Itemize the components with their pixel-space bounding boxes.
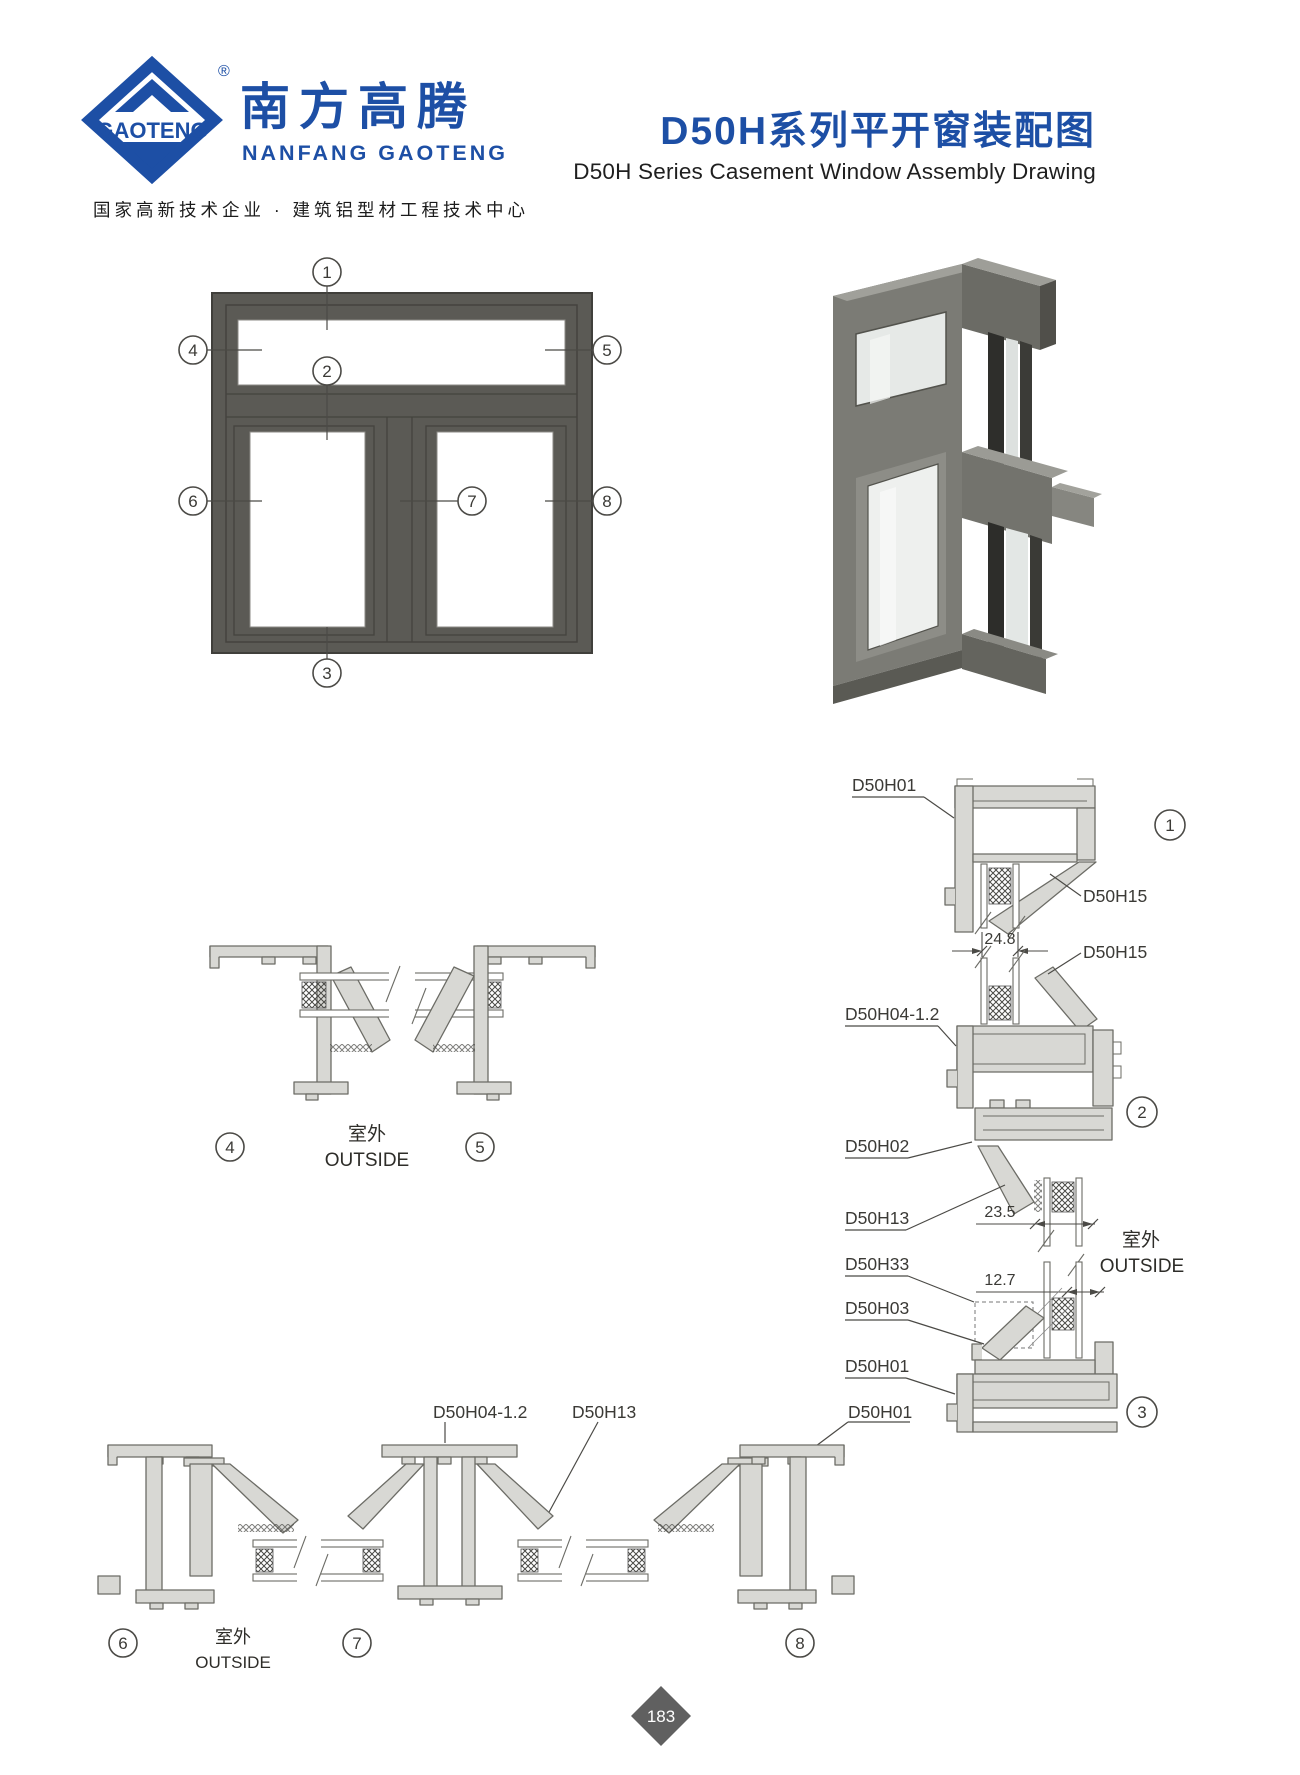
dim-glass-unit: 24.8 [984, 931, 1015, 948]
label-d50h15-top: D50H15 [1083, 886, 1147, 906]
callout-6-number: 6 [188, 492, 197, 511]
profile-3d-render [760, 240, 1160, 710]
base-tooth [754, 1603, 767, 1609]
callout-7-number: 7 [352, 1634, 361, 1653]
callout-8-number: 8 [795, 1634, 804, 1653]
left-sash-pane [250, 432, 365, 627]
leader-bead [548, 1422, 598, 1514]
cap-tooth [402, 1457, 415, 1464]
leader-frame [816, 1422, 848, 1446]
spacer [1052, 1182, 1074, 1212]
sill-flange [973, 1422, 1117, 1432]
glazing-bar-upper-1 [988, 332, 1004, 468]
glazing-bead-15b [1035, 967, 1097, 1031]
bead-hook [972, 1344, 982, 1360]
jamb-foot [457, 1082, 511, 1094]
glass-unit-a [253, 1535, 383, 1586]
sash-top-rail [975, 1108, 1112, 1140]
jamb-web [317, 946, 331, 1094]
transom-body [957, 1026, 1093, 1072]
mullion-web [424, 1457, 437, 1589]
gasket-strip [238, 1524, 294, 1532]
logo-brand-latin: GAOTENG [96, 118, 207, 143]
meeting-stile-right [477, 1464, 553, 1529]
frame-flange [1077, 808, 1095, 860]
frame-shelf [973, 854, 1077, 862]
frame-top-hooks [957, 779, 1093, 786]
break-gap [389, 967, 415, 1023]
sill-body [957, 1374, 1117, 1408]
transom-flange [1093, 1030, 1113, 1106]
aluminum-sample-render [833, 258, 1102, 704]
outside-right-cjk: 室外 [1122, 1229, 1160, 1251]
lower-glass [868, 464, 938, 650]
outside-label-cjk: 室外 [348, 1123, 386, 1145]
callout-2: 2 [313, 357, 341, 385]
gaoteng-logo-icon: GAOTENG ® [90, 63, 230, 176]
page-title-cjk: D50H系列平开窗装配图 [556, 108, 1096, 157]
callout-6: 6 [179, 487, 207, 515]
callout-4-detail: 4 [216, 1133, 244, 1161]
right-sash-stile [654, 1458, 768, 1576]
dim-12-7: 12.7 [976, 1272, 1105, 1297]
callout-4: 4 [179, 336, 207, 364]
glazing-bar-upper-2 [1020, 341, 1032, 472]
dim-glazing-pocket: 23.5 [984, 1204, 1015, 1221]
callout-8-number: 8 [602, 492, 611, 511]
frame-top-bar [955, 786, 1095, 808]
callout-detail-7: 7 [343, 1629, 371, 1657]
transom-web [957, 1026, 973, 1108]
callout-detail-2-number: 2 [1137, 1103, 1146, 1122]
registered-mark: ® [218, 63, 230, 80]
label-d50h04-bottom: D50H04-1.2 [433, 1402, 527, 1422]
glass-edge-upper [1006, 338, 1018, 469]
mullion-foot [398, 1586, 502, 1599]
callout-7-number: 7 [467, 492, 476, 511]
glazing-bead-03 [982, 1306, 1044, 1360]
glass-unit-transom [975, 946, 1025, 1024]
brand-cjk: 南方高腾 [240, 79, 476, 135]
leader-d50h33 [908, 1276, 974, 1302]
glass-pane [1013, 864, 1019, 928]
jamb-web [474, 946, 488, 1094]
leader-d50h15b [1048, 953, 1081, 974]
logo-block: GAOTENG ® 南方高腾 NANFANG GAOTENG 国家高新技术企业 … [80, 48, 560, 228]
callout-1: 1 [313, 258, 341, 286]
cap-tooth [474, 1457, 487, 1464]
meeting-stile-left [348, 1464, 424, 1529]
jamb-base [136, 1590, 214, 1603]
page-number-badge: 183 [625, 1680, 697, 1752]
label-d50h01-sill: D50H01 [845, 1356, 909, 1376]
lower-glass-streak [880, 487, 896, 646]
glass-pane [1013, 958, 1019, 1024]
jamb-web [146, 1457, 162, 1595]
callout-detail-1-number: 1 [1165, 816, 1174, 835]
page: GAOTENG ® 南方高腾 NANFANG GAOTENG 国家高新技术企业 … [0, 0, 1300, 1775]
page-title-en: D50H Series Casement Window Assembly Dra… [556, 159, 1096, 185]
callout-4-number: 4 [225, 1138, 234, 1157]
upper-glass-streak [870, 334, 890, 404]
callout-8: 8 [593, 487, 621, 515]
callout-2-number: 2 [322, 362, 331, 381]
right-jamb-profile [415, 946, 595, 1100]
spacer [628, 1549, 645, 1572]
fixed-top-pane [238, 320, 565, 385]
cap-tooth [529, 957, 542, 964]
interlock [1016, 1100, 1030, 1108]
foot-tooth [466, 1599, 479, 1605]
callout-detail-3-number: 3 [1137, 1403, 1146, 1422]
callout-detail-6: 6 [109, 1629, 137, 1657]
label-d50h13-bottom: D50H13 [572, 1402, 636, 1422]
leader-d50h03 [908, 1320, 984, 1344]
glazing-bar-lower-2 [1030, 535, 1042, 658]
label-d50h03: D50H03 [845, 1298, 909, 1318]
outside-right-en: OUTSIDE [1100, 1256, 1184, 1277]
leader-d50h01 [924, 797, 954, 818]
callout-7: 7 [458, 487, 486, 515]
gasket-strip [433, 1044, 475, 1052]
spacer [989, 868, 1011, 904]
glass-pane [1044, 1262, 1050, 1358]
glass-pane [1076, 1178, 1082, 1246]
glass-pane [1044, 1178, 1050, 1246]
callout-1-number: 1 [322, 263, 331, 282]
outside-bottom-en: OUTSIDE [195, 1653, 271, 1672]
stile-body [740, 1464, 762, 1576]
spacer [256, 1549, 273, 1572]
section-6-7-8-drawing: D50H04-1.2 D50H13 D50H01 [60, 1390, 960, 1685]
stile-body [190, 1464, 212, 1576]
label-d50h15-transom: D50H15 [1083, 942, 1147, 962]
mullion-web [462, 1457, 475, 1589]
glass-edge-lower [1006, 528, 1028, 655]
page-number: 183 [647, 1707, 675, 1726]
transom-hook [947, 1070, 957, 1087]
outside-label-en: OUTSIDE [325, 1150, 409, 1171]
tagline: 国家高新技术企业 · 建筑铝型材工程技术中心 [93, 200, 529, 220]
break-gap [297, 1535, 321, 1585]
head-frame-profile [945, 779, 1096, 934]
mullion-cap [382, 1445, 517, 1457]
brand-sub: NANFANG GAOTENG [242, 141, 508, 165]
cap-tooth [303, 957, 316, 964]
interlock [990, 1100, 1004, 1108]
spacer [1052, 1298, 1074, 1330]
spacer [521, 1549, 538, 1572]
transom-profile [947, 1026, 1121, 1140]
callout-detail-8: 8 [786, 1629, 814, 1657]
jamb-cap [740, 1445, 844, 1457]
title-block: D50H系列平开窗装配图 D50H Series Casement Window… [556, 108, 1096, 185]
foot-tooth [420, 1599, 433, 1605]
leader-d50h02 [908, 1142, 972, 1158]
callout-detail-2: 2 [1127, 1097, 1157, 1127]
sill-frame-profile [947, 1306, 1117, 1432]
callout-3: 3 [313, 659, 341, 687]
base-tooth [789, 1603, 802, 1609]
leader-d50h04 [938, 1026, 956, 1046]
jamb-cap [477, 946, 595, 957]
glass-unit-b [518, 1535, 648, 1586]
cap-tooth [438, 1457, 451, 1464]
cap-tooth [262, 957, 275, 964]
cap-tooth [488, 957, 501, 964]
base-tooth [150, 1603, 163, 1609]
dim-24-8: 24.8 [952, 931, 1048, 957]
jamb-foot [832, 1576, 854, 1594]
callout-5-detail: 5 [466, 1133, 494, 1161]
spacer-left [302, 982, 326, 1008]
outside-bottom-cjk: 室外 [215, 1627, 251, 1647]
frame-web [955, 786, 973, 932]
frame-hook [945, 888, 955, 905]
left-jamb-profile [210, 946, 390, 1100]
callout-detail-3: 3 [1127, 1397, 1157, 1427]
glazing-bar-lower-1 [988, 522, 1004, 652]
jamb-foot [98, 1576, 120, 1594]
flange-hooks [1113, 1042, 1121, 1078]
foot-tooth [306, 1094, 318, 1100]
callout-4-number: 4 [188, 341, 197, 360]
jamb-foot [294, 1082, 348, 1094]
elevation-drawing: 1 2 3 4 5 6 7 8 [165, 228, 635, 698]
glass-pane [1076, 1262, 1082, 1358]
gasket-strip [1034, 1180, 1042, 1212]
label-d50h01-bottom: D50H01 [848, 1402, 912, 1422]
dim-single-glass: 12.7 [984, 1272, 1015, 1289]
label-d50h01-head: D50H01 [852, 775, 916, 795]
callout-3-number: 3 [322, 664, 331, 683]
callout-5-number: 5 [602, 341, 611, 360]
head-profile-end [1040, 280, 1056, 350]
stile-bead [212, 1464, 298, 1533]
callout-5: 5 [593, 336, 621, 364]
jamb-web [790, 1457, 806, 1595]
label-d50h02: D50H02 [845, 1136, 909, 1156]
sash-bottom-rail [975, 1360, 1095, 1374]
cap-tooth [752, 1457, 765, 1464]
stile-bead [654, 1464, 740, 1533]
gasket-strip [658, 1524, 714, 1532]
foot-tooth [487, 1094, 499, 1100]
label-d50h13: D50H13 [845, 1208, 909, 1228]
base-tooth [185, 1603, 198, 1609]
gasket-strip [330, 1044, 372, 1052]
frame-step [1095, 1342, 1113, 1374]
label-d50h04: D50H04-1.2 [845, 1004, 939, 1024]
jamb-cap [108, 1445, 212, 1457]
label-d50h33: D50H33 [845, 1254, 909, 1274]
jamb-base [738, 1590, 816, 1603]
left-sash-stile [184, 1458, 298, 1576]
right-sash-pane [437, 432, 553, 627]
glass-pane [981, 958, 987, 1024]
spacer [363, 1549, 380, 1572]
break-gap [562, 1535, 586, 1585]
spacer [989, 986, 1011, 1020]
vertical-section-details: D50H01 D50H15 24.8 1 D50H15 [730, 760, 1220, 1460]
callout-detail-1: 1 [1155, 810, 1185, 840]
callout-5-number: 5 [475, 1138, 484, 1157]
jamb-cap [210, 946, 328, 957]
callout-6-number: 6 [118, 1634, 127, 1653]
section-4-5-drawing: 4 5 室外 OUTSIDE [170, 930, 630, 1185]
